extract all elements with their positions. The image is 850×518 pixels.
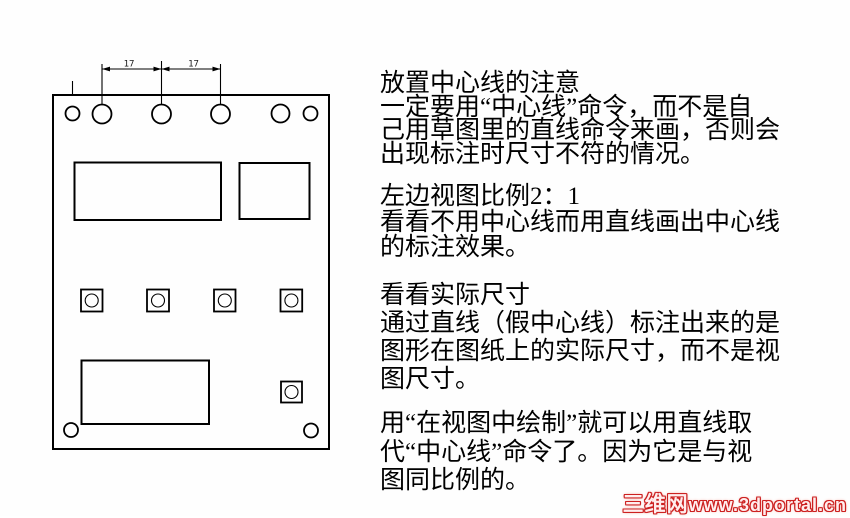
dim-label-1: 17 xyxy=(124,60,135,70)
site-watermark: 三维网www.3dportal.cn xyxy=(623,488,847,518)
cutout-rect-small xyxy=(240,163,310,219)
paragraph-draw-in-view: 用“在视图中绘制”就可以用直线取 代“中心线”命令了。因为它是与视 图同比例的。 xyxy=(380,410,752,496)
dim-arrow-left xyxy=(102,67,110,72)
text-line: 放置中心线的注意 xyxy=(380,72,780,96)
boss-square-4 xyxy=(281,290,303,312)
hole-top-2 xyxy=(93,105,112,124)
boss-square-3 xyxy=(214,290,236,312)
text-line: 出现标注时尺寸不符的情况。 xyxy=(380,143,780,167)
dim-arrow-mid-left xyxy=(154,67,162,72)
text-line: 看看实际尺寸 xyxy=(380,282,780,310)
paragraph-view-scale: 左边视图比例2：1 看看不用中心线而用直线画出中心线 的标注效果。 xyxy=(380,184,780,261)
slide-page: 17 17 放置中心线的注意 一定要用“中心线”命令，而不是自 己 xyxy=(0,0,850,516)
text-line: 看看不用中心线而用直线画出中心线 xyxy=(380,210,780,236)
watermark-latin-text: www.3dportal.cn xyxy=(689,495,847,515)
boss-hole-5 xyxy=(285,386,298,399)
dim-arrow-right xyxy=(213,67,221,72)
text-line: 用“在视图中绘制”就可以用直线取 xyxy=(380,410,752,439)
dim-arrow-mid-right xyxy=(162,67,170,72)
hole-top-1 xyxy=(66,107,80,121)
text-line: 图形在图纸上的实际尺寸，而不是视 xyxy=(380,338,780,366)
hole-bottom-left xyxy=(64,423,78,437)
boss-hole-1 xyxy=(85,294,98,307)
hole-top-3 xyxy=(152,105,171,124)
boss-square-5 xyxy=(281,382,302,403)
watermark-cjk-text: 三维网 xyxy=(623,493,689,516)
boss-square-2 xyxy=(147,290,169,312)
text-line: 左边视图比例2：1 xyxy=(380,184,780,210)
text-line: 图尺寸。 xyxy=(380,366,780,394)
text-line: 一定要用“中心线”命令，而不是自 xyxy=(380,96,780,120)
hole-bottom-right xyxy=(304,424,318,438)
text-line: 己用草图里的直线命令来画，否则会 xyxy=(380,119,780,143)
cutout-rect-lower xyxy=(82,361,210,425)
dim-label-2: 17 xyxy=(188,60,199,70)
boss-square-1 xyxy=(81,290,103,312)
text-line: 的标注效果。 xyxy=(380,235,780,261)
engineering-drawing: 17 17 xyxy=(0,0,360,516)
paragraph-actual-size: 看看实际尺寸 通过直线（假中心线）标注出来的是 图形在图纸上的实际尺寸，而不是视… xyxy=(380,282,780,394)
plate-outline xyxy=(53,95,329,449)
boss-hole-4 xyxy=(285,294,298,307)
hole-top-4 xyxy=(211,105,230,124)
hole-top-5 xyxy=(272,105,290,123)
boss-hole-3 xyxy=(218,294,231,307)
text-line: 代“中心线”命令了。因为它是与视 xyxy=(380,439,752,468)
cutout-rect-large xyxy=(75,163,222,221)
hole-top-6 xyxy=(304,107,318,121)
boss-hole-2 xyxy=(152,294,165,307)
paragraph-centerline-note: 放置中心线的注意 一定要用“中心线”命令，而不是自 己用草图里的直线命令来画，否… xyxy=(380,72,780,166)
text-line: 通过直线（假中心线）标注出来的是 xyxy=(380,310,780,338)
